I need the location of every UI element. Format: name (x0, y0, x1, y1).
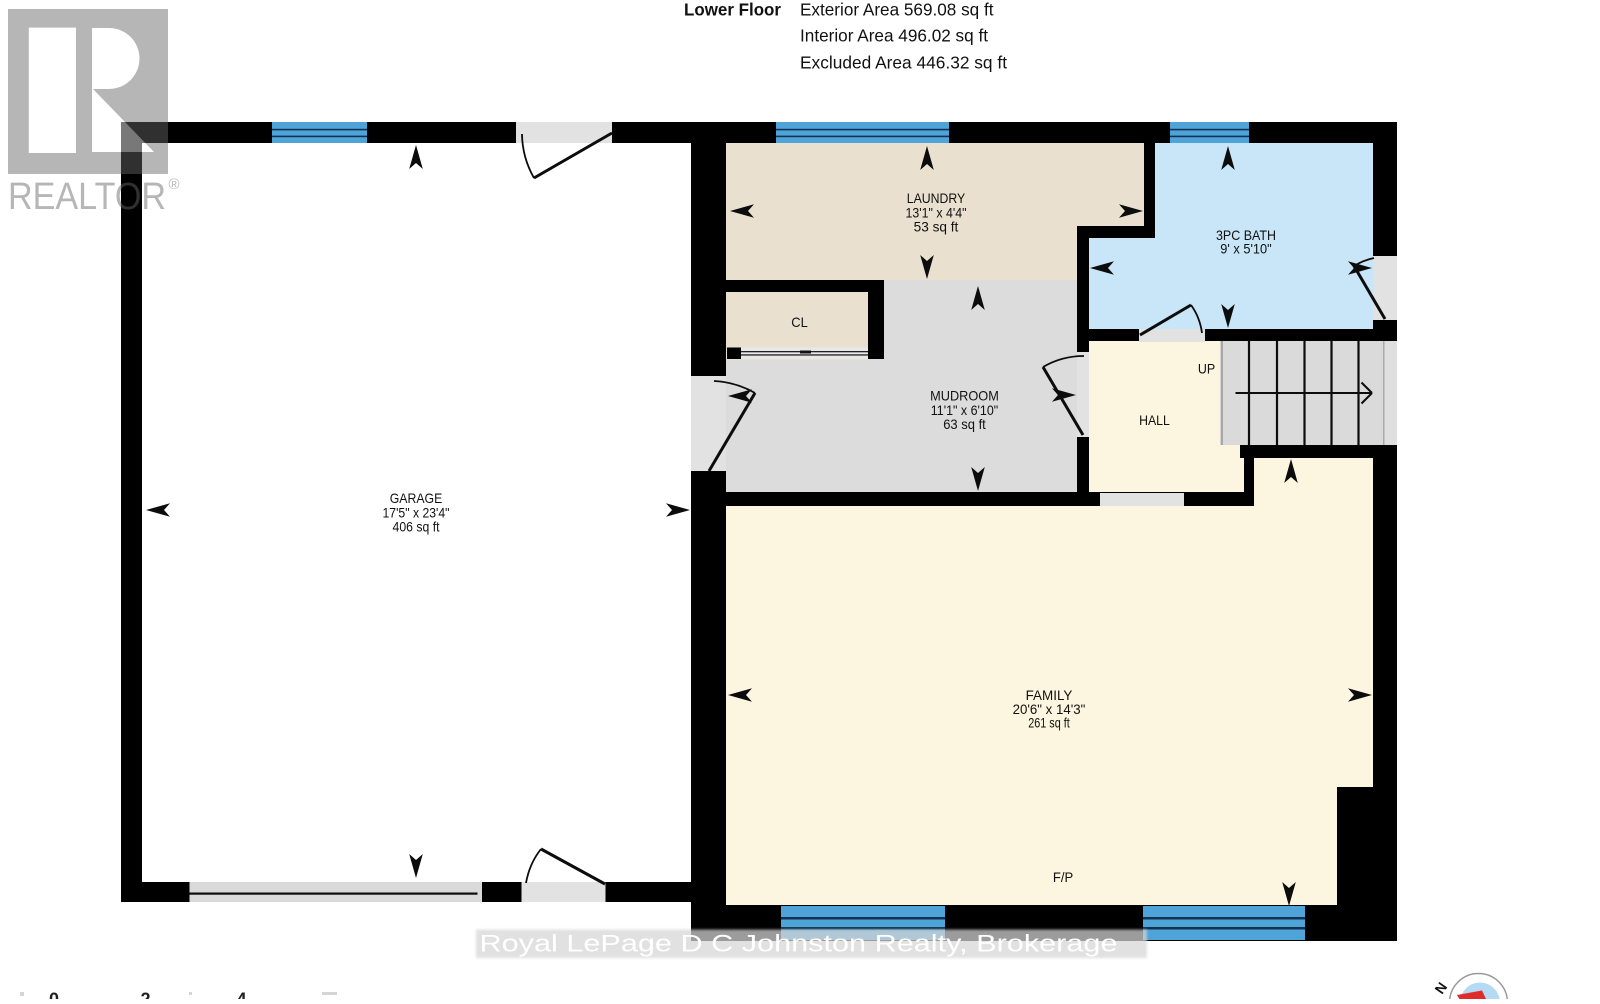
svg-text:CL: CL (791, 314, 808, 330)
svg-text:2: 2 (140, 990, 150, 999)
svg-text:Exterior Area 569.08 sq ft: Exterior Area 569.08 sq ft (800, 0, 994, 20)
svg-text:4: 4 (236, 990, 246, 999)
svg-text:406 sq ft: 406 sq ft (393, 519, 440, 535)
svg-text:Excluded Area 446.32 sq ft: Excluded Area 446.32 sq ft (800, 53, 1007, 73)
svg-text:Royal LePage D C Johnston Real: Royal LePage D C Johnston Realty, Broker… (480, 931, 1118, 958)
svg-text:®: ® (169, 176, 180, 193)
svg-text:Lower Floor: Lower Floor (684, 0, 781, 20)
svg-text:63 sq ft: 63 sq ft (943, 416, 986, 432)
svg-text:LAUNDRY: LAUNDRY (907, 190, 966, 206)
svg-text:Interior Area 496.02 sq ft: Interior Area 496.02 sq ft (800, 26, 988, 46)
svg-text:HALL: HALL (1139, 412, 1170, 428)
svg-text:261 sq ft: 261 sq ft (1028, 715, 1070, 731)
svg-text:REALTOR: REALTOR (8, 176, 166, 218)
svg-text:N: N (1431, 979, 1450, 996)
svg-text:0: 0 (49, 990, 59, 999)
svg-text:53 sq ft: 53 sq ft (914, 218, 959, 234)
svg-text:F/P: F/P (1053, 869, 1073, 885)
svg-text:9' x 5'10": 9' x 5'10" (1220, 240, 1271, 256)
svg-text:UP: UP (1198, 361, 1215, 377)
